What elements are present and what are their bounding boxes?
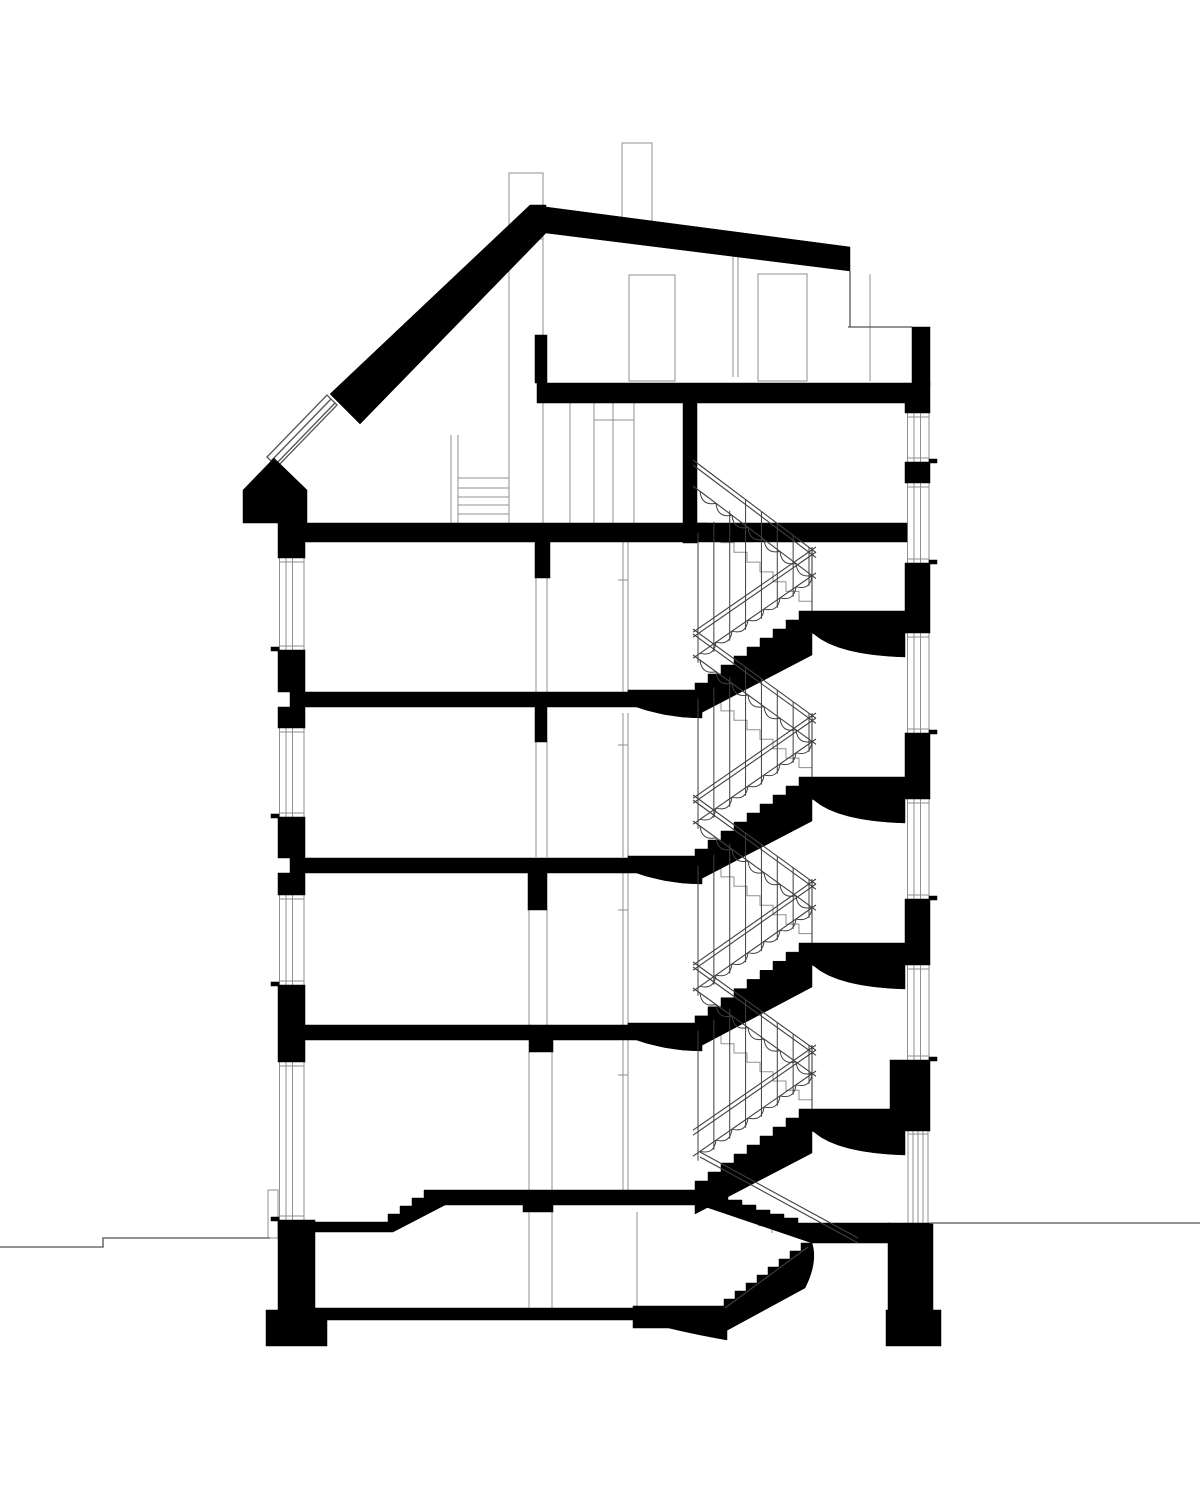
ground-floor-slab	[305, 1190, 890, 1243]
landing-arch	[812, 633, 905, 657]
ground-line	[0, 1238, 270, 1247]
skylight-outline	[267, 395, 337, 467]
roof-right-slope	[546, 207, 850, 271]
stair-landing	[812, 777, 905, 799]
stair-landing	[812, 1109, 905, 1131]
cut-wall	[535, 335, 547, 383]
cut-wall	[290, 523, 907, 542]
cut-wall	[529, 1040, 553, 1052]
thin-outline	[268, 1190, 278, 1238]
cut-wall	[535, 707, 547, 742]
cut-wall	[905, 899, 930, 965]
architectural-section-figure	[0, 0, 1200, 1500]
cut-wall	[905, 563, 930, 633]
cut-wall	[888, 1223, 933, 1310]
cut-wall	[912, 327, 930, 385]
cut-wall	[290, 1025, 668, 1040]
cut-wall	[537, 383, 905, 403]
cut-wall	[278, 873, 305, 895]
basement-flight	[724, 1243, 814, 1332]
cut-wall	[278, 985, 305, 1062]
stair-landing	[812, 611, 905, 633]
med-line	[271, 399, 331, 461]
cut-wall	[278, 1220, 315, 1312]
landing-arch	[812, 965, 905, 989]
thin-outline	[622, 143, 652, 221]
slab-cove	[628, 690, 702, 718]
cut-wall	[683, 403, 697, 543]
med-line	[275, 403, 335, 465]
cut-wall	[528, 873, 547, 910]
stair-landing	[812, 943, 905, 965]
landing-arch	[812, 799, 905, 823]
stair-flight-cut	[695, 777, 812, 882]
cut-wall	[886, 1310, 941, 1346]
slab-cove	[628, 1023, 702, 1051]
cut-wall	[278, 650, 305, 692]
cut-wall	[278, 707, 305, 728]
cut-wall	[905, 462, 930, 483]
thin-outline	[758, 274, 807, 381]
cut-wall	[905, 733, 930, 799]
layer-cut-poche	[243, 205, 941, 1346]
stair-flight-cut	[695, 1109, 812, 1214]
layer-ground-line	[0, 1223, 1200, 1247]
stair-flight-cut	[695, 611, 812, 716]
cut-wall	[905, 383, 930, 413]
section-drawing-svg	[0, 0, 1200, 1500]
architectural-section-page	[0, 0, 1200, 1500]
landing-arch	[812, 1131, 905, 1155]
thin-outline	[629, 275, 675, 381]
cut-wall	[535, 542, 550, 578]
stair-flight-cut	[695, 943, 812, 1049]
railing-line	[693, 465, 816, 558]
cut-wall	[290, 858, 668, 873]
cut-wall	[290, 692, 668, 707]
railing-line	[693, 1045, 816, 1130]
railing-line	[693, 547, 816, 632]
cut-wall	[523, 1205, 553, 1212]
cut-wall	[278, 817, 305, 858]
eaves-block	[243, 458, 307, 523]
railing-line	[693, 713, 816, 798]
slab-cove	[628, 856, 702, 884]
roof-left-slope	[330, 205, 546, 424]
